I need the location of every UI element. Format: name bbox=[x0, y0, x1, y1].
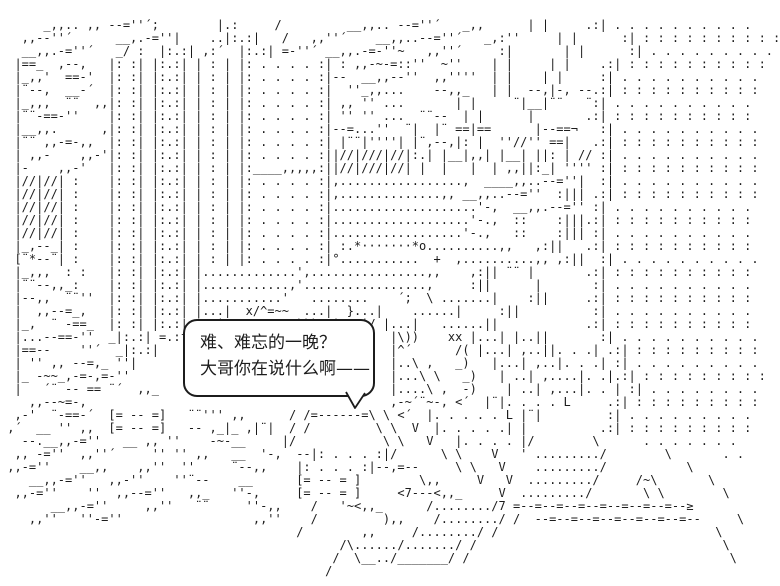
bubble-tail-icon bbox=[344, 391, 368, 411]
dialogue-line-1: 难、难忘的一晚？ bbox=[200, 331, 373, 357]
dialogue-line-2: 大哥你在说什么啊—— bbox=[200, 357, 373, 383]
speech-bubble: 难、难忘的一晚？ 大哥你在说什么啊—— bbox=[183, 319, 375, 397]
aa-scene: _,,.. ,, --=''´; |.: / __,,.. --=''´ _,,… bbox=[0, 0, 780, 586]
ascii-art: _,,.. ,, --=''´; |.: / __,,.. --=''´ _,,… bbox=[0, 6, 780, 578]
